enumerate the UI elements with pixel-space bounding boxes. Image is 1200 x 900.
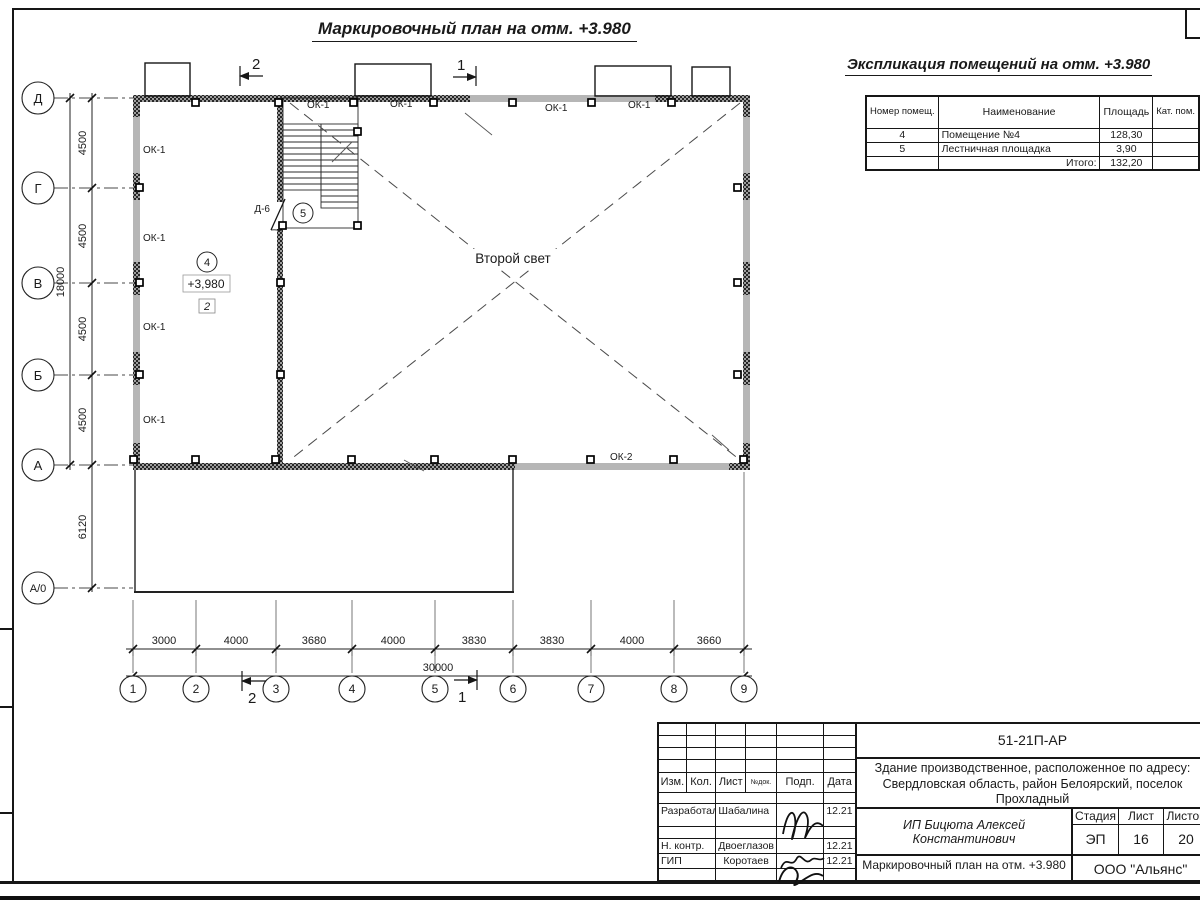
sheet-value: 16 [1119, 825, 1163, 854]
project-description: Здание производственное, расположенное п… [857, 759, 1200, 809]
dim-value: 4000 [381, 635, 405, 647]
revision-header-row: Изм. Кол. Лист №док. Подп. Дата [659, 773, 855, 793]
document-code: 51-21П-АР [857, 724, 1200, 759]
dim-value: 4500 [77, 224, 89, 248]
sheet-label: Лист [1119, 809, 1163, 825]
section-label: 2 [248, 690, 256, 707]
col-ndok: №док. [746, 773, 777, 792]
sheets-value: 20 [1164, 825, 1200, 854]
signature-row: Разработал Шабалина 12.21 [659, 804, 855, 827]
sheets-column: Листов 20 [1164, 809, 1200, 854]
stage-label: Стадия [1073, 809, 1118, 825]
revision-row [659, 869, 855, 882]
dimension-line-left-total: 18000 [55, 93, 74, 470]
room-number-label: 5 [300, 208, 306, 220]
void-cross [290, 103, 740, 460]
dimension-line-bottom: 3000 4000 3680 4000 3830 3830 4000 3660 [126, 635, 752, 653]
sheets-label: Листов [1164, 809, 1200, 825]
sheet-column: Лист 16 [1119, 809, 1164, 854]
room-number-label: 4 [204, 257, 210, 269]
door-label: Д-6 [254, 204, 270, 215]
col-data: Дата [824, 773, 855, 792]
col-kol: Кол. [687, 773, 717, 792]
void-label: Второй свет [475, 251, 550, 266]
zone-label: 2 [203, 301, 210, 313]
dim-value: 4000 [620, 635, 644, 647]
person-name: Шабалина [716, 804, 776, 826]
window-label: ОК-1 [390, 99, 413, 110]
dim-value: 3830 [540, 635, 564, 647]
dim-value: 3680 [302, 635, 326, 647]
signature-row [659, 793, 855, 804]
window-label: ОК-1 [143, 322, 166, 333]
window-label: ОК-2 [610, 452, 633, 463]
title-block-main: 51-21П-АР Здание производственное, распо… [857, 724, 1200, 880]
title-block-revision-table: Изм. Кол. Лист №док. Подп. Дата Разработ… [659, 724, 857, 880]
dim-value: 4500 [77, 317, 89, 341]
axis-label: Б [34, 368, 43, 383]
person-name: Коротаев [716, 854, 776, 868]
dim-value: 6120 [77, 515, 89, 539]
window-label: ОК-1 [143, 145, 166, 156]
signature-row: ГИП Коротаев 12.21 [659, 854, 855, 869]
section-marker-2-top: 2 [239, 56, 263, 86]
section-marker-1-bottom: 1 [454, 670, 478, 706]
revision-row [659, 748, 855, 760]
revision-row [659, 724, 855, 736]
dim-value: 4500 [77, 408, 89, 432]
person-name: Двоеглазов [716, 839, 776, 853]
dim-value: 4500 [77, 131, 89, 155]
section-label: 2 [252, 56, 260, 73]
axis-label: А [34, 458, 43, 473]
window-label: ОК-1 [143, 415, 166, 426]
axis-label: 7 [588, 682, 595, 696]
role-label: ГИП [659, 854, 716, 868]
axis-label: 6 [510, 682, 517, 696]
dim-value: 3830 [462, 635, 486, 647]
dim-value: 3000 [152, 635, 176, 647]
axis-label: 5 [432, 682, 439, 696]
axis-bubbles-left [22, 82, 54, 604]
window-label: ОК-1 [143, 233, 166, 244]
date-value: 12.21 [824, 854, 855, 868]
section-label: 1 [457, 57, 465, 74]
role-label: Н. контр. [659, 839, 716, 853]
axis-label: Г [34, 181, 41, 196]
col-podp: Подп. [777, 773, 825, 792]
elevation-label: +3,980 [187, 277, 224, 291]
dimension-line-left: 4500 4500 4500 4500 6120 [77, 93, 96, 592]
axis-label: 8 [671, 682, 678, 696]
axis-label: Д [34, 91, 43, 106]
revision-row [659, 760, 855, 773]
axis-label: 1 [130, 682, 137, 696]
signature-row [659, 827, 855, 839]
window-label: ОК-1 [307, 100, 330, 111]
dim-value: 4000 [224, 635, 248, 647]
lower-extension-outline [134, 470, 514, 592]
dim-total: 18000 [55, 267, 67, 298]
roof-protrusions [145, 63, 730, 96]
break-marks [404, 113, 729, 471]
drawing-sheet: { "page_title": "Маркировочный план на о… [0, 0, 1200, 900]
section-marker-1-top: 1 [453, 57, 477, 86]
company-name: ООО "Альянс" [1073, 856, 1200, 882]
dim-total: 30000 [423, 662, 454, 674]
section-label: 1 [458, 689, 466, 706]
col-list: Лист [716, 773, 746, 792]
revision-row [659, 736, 855, 748]
date-value: 12.21 [824, 839, 855, 853]
title-block: Изм. Кол. Лист №док. Подп. Дата Разработ… [657, 722, 1200, 882]
window-label: ОК-1 [628, 100, 651, 111]
axis-label: А/0 [30, 583, 47, 595]
axis-label: 3 [273, 682, 280, 696]
axis-label: 9 [741, 682, 748, 696]
room4-marker: 4 +3,980 2 [183, 252, 230, 313]
role-label: Разработал [659, 804, 716, 826]
axis-label: 2 [193, 682, 200, 696]
client-name: ИП Бицюта Алексей Константинович [857, 809, 1073, 854]
col-izm: Изм. [659, 773, 687, 792]
stage-column: Стадия ЭП [1073, 809, 1119, 854]
axis-labels-left: Д Г В Б А А/0 [30, 91, 47, 595]
stage-value: ЭП [1073, 825, 1118, 854]
axis-lines-left [54, 98, 133, 588]
date-value: 12.21 [824, 804, 855, 826]
axis-label: В [34, 276, 43, 291]
axis-bubbles-bottom [120, 676, 757, 702]
room5-marker: 5 [293, 203, 313, 223]
dim-value: 3660 [697, 635, 721, 647]
drawing-title: Маркировочный план на отм. +3.980 [857, 856, 1073, 882]
window-label: ОК-1 [545, 103, 568, 114]
signature-row: Н. контр. Двоеглазов 12.21 [659, 839, 855, 854]
axis-label: 4 [349, 682, 356, 696]
